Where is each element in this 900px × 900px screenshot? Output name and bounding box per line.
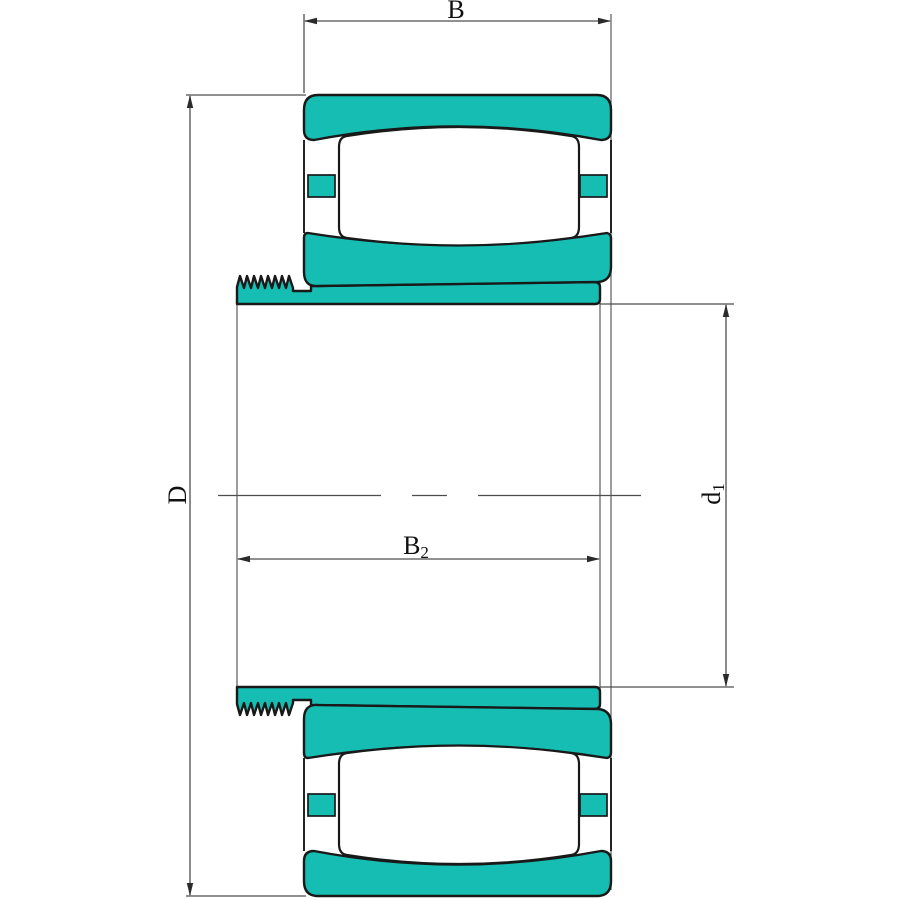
label-D: D [163, 486, 192, 505]
arrow-d1-top [723, 304, 729, 317]
bearing-top-half [237, 95, 611, 304]
arrow-D-top [187, 95, 193, 108]
bearing-cross-section-drawing: B D B2 d1 [0, 0, 900, 900]
bearing-bottom-half [237, 687, 611, 896]
arrow-B2-right [587, 556, 600, 562]
arrow-D-bottom [187, 883, 193, 896]
label-B2: B2 [403, 531, 429, 562]
label-B: B [447, 0, 464, 24]
arrow-B-right [598, 18, 611, 24]
arrow-B-left [304, 18, 317, 24]
arrow-B2-left [237, 556, 250, 562]
arrow-d1-bottom [723, 674, 729, 687]
drawing-canvas: B D B2 d1 [0, 0, 900, 900]
label-d1: d1 [697, 483, 728, 505]
